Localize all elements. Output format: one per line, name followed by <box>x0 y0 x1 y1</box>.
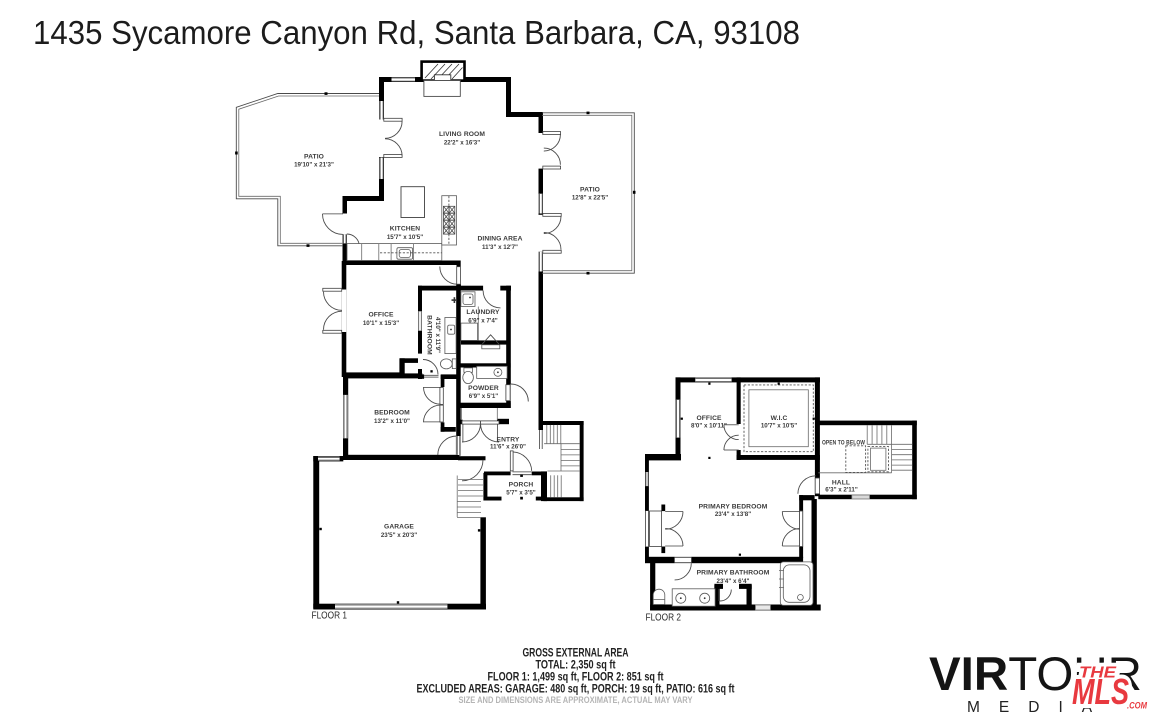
svg-text:SIZE AND DIMENSIONS ARE APPROX: SIZE AND DIMENSIONS ARE APPROXIMATE, ACT… <box>459 695 694 705</box>
svg-text:OFFICE: OFFICE <box>368 312 394 319</box>
svg-text:8'0" x 10'11": 8'0" x 10'11" <box>691 423 727 430</box>
svg-text:GARAGE: GARAGE <box>384 524 414 531</box>
svg-text:13'2" x 11'0": 13'2" x 11'0" <box>374 418 410 425</box>
svg-text:PATIO: PATIO <box>304 154 324 161</box>
svg-text:6'3" x 2'11": 6'3" x 2'11" <box>825 487 858 494</box>
svg-text:MLS: MLS <box>1072 671 1129 712</box>
svg-text:HALL: HALL <box>832 480 850 487</box>
svg-text:5'7" x 3'5": 5'7" x 3'5" <box>506 490 536 497</box>
svg-text:LIVING ROOM: LIVING ROOM <box>439 131 485 138</box>
svg-text:23'4" x 13'8": 23'4" x 13'8" <box>715 511 751 518</box>
svg-text:6'9" x 7'4": 6'9" x 7'4" <box>468 318 498 325</box>
svg-text:POWDER: POWDER <box>468 385 499 392</box>
svg-text:23'5" x 20'3": 23'5" x 20'3" <box>381 532 417 539</box>
svg-text:DINING AREA: DINING AREA <box>477 236 522 243</box>
svg-text:FLOOR 2: FLOOR 2 <box>646 613 682 624</box>
svg-text:BEDROOM: BEDROOM <box>374 410 410 417</box>
svg-text:19'10" x 21'3": 19'10" x 21'3" <box>294 162 334 169</box>
svg-text:PATIO: PATIO <box>580 187 600 194</box>
svg-text:PRIMARY BEDROOM: PRIMARY BEDROOM <box>699 504 768 511</box>
svg-text:15'7" x 10'5": 15'7" x 10'5" <box>387 234 423 241</box>
svg-text:OFFICE: OFFICE <box>696 415 722 422</box>
svg-text:22'2" x 16'3": 22'2" x 16'3" <box>444 140 480 147</box>
svg-text:OPEN TO BELOW: OPEN TO BELOW <box>822 439 865 446</box>
svg-text:4'10" x 11'9": 4'10" x 11'9" <box>434 317 441 353</box>
svg-text:FLOOR 1: FLOOR 1 <box>312 611 348 622</box>
svg-text:23'4" x 6'4": 23'4" x 6'4" <box>717 578 750 585</box>
svg-text:EXCLUDED AREAS: GARAGE: 480 sq: EXCLUDED AREAS: GARAGE: 480 sq ft, PORCH… <box>417 683 735 696</box>
svg-text:ENTRY: ENTRY <box>497 437 520 444</box>
svg-text:6'9" x 5'1": 6'9" x 5'1" <box>469 393 499 400</box>
svg-text:LAUNDRY: LAUNDRY <box>466 309 500 316</box>
svg-text:PORCH: PORCH <box>509 482 534 489</box>
svg-text:.COM: .COM <box>1127 701 1147 711</box>
svg-text:10'7" x 10'5": 10'7" x 10'5" <box>761 423 797 430</box>
svg-text:KITCHEN: KITCHEN <box>390 226 420 233</box>
svg-text:PRIMARY BATHROOM: PRIMARY BATHROOM <box>697 570 770 577</box>
svg-text:W.I.C: W.I.C <box>771 415 788 422</box>
svg-text:11'6" x 26'0": 11'6" x 26'0" <box>490 444 526 451</box>
svg-text:12'8" x 22'5": 12'8" x 22'5" <box>572 195 608 202</box>
svg-text:11'3" x 12'7": 11'3" x 12'7" <box>482 244 518 251</box>
svg-text:10'1" x 15'3": 10'1" x 15'3" <box>363 320 399 327</box>
svg-text:BATHROOM: BATHROOM <box>426 315 433 355</box>
svg-text:1435 Sycamore Canyon Rd, Santa: 1435 Sycamore Canyon Rd, Santa Barbara, … <box>33 15 800 52</box>
